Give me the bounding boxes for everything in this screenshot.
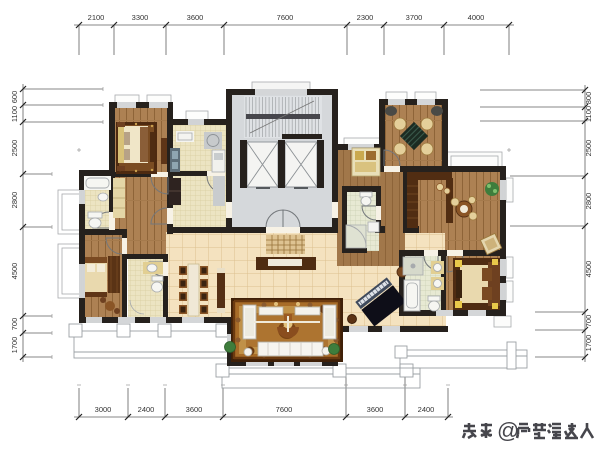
- svg-text:3600: 3600: [367, 405, 384, 414]
- svg-text:800: 800: [584, 92, 593, 105]
- svg-text:2800: 2800: [584, 193, 593, 210]
- svg-text:3700: 3700: [406, 13, 423, 22]
- svg-text:4500: 4500: [10, 263, 19, 280]
- svg-text:700: 700: [584, 315, 593, 328]
- svg-text:4500: 4500: [584, 261, 593, 278]
- svg-text:2500: 2500: [584, 140, 593, 157]
- svg-text:2800: 2800: [10, 192, 19, 209]
- svg-text:1100: 1100: [10, 106, 19, 122]
- svg-text:2400: 2400: [418, 405, 435, 414]
- svg-text:3000: 3000: [95, 405, 112, 414]
- svg-text:3600: 3600: [186, 405, 203, 414]
- svg-text:3600: 3600: [187, 13, 204, 22]
- svg-text:7600: 7600: [277, 13, 294, 22]
- svg-text:3300: 3300: [132, 13, 149, 22]
- svg-text:2100: 2100: [88, 13, 105, 22]
- svg-text:1700: 1700: [10, 337, 19, 354]
- svg-text:2400: 2400: [138, 405, 155, 414]
- svg-text:1100: 1100: [584, 106, 593, 122]
- svg-text:1700: 1700: [584, 335, 593, 352]
- svg-text:600: 600: [10, 91, 19, 104]
- svg-text:4000: 4000: [468, 13, 485, 22]
- svg-text:7600: 7600: [276, 405, 293, 414]
- svg-text:700: 700: [10, 318, 19, 331]
- svg-text:2500: 2500: [10, 140, 19, 157]
- svg-text:2300: 2300: [357, 13, 374, 22]
- svg-text:@: @: [497, 418, 519, 443]
